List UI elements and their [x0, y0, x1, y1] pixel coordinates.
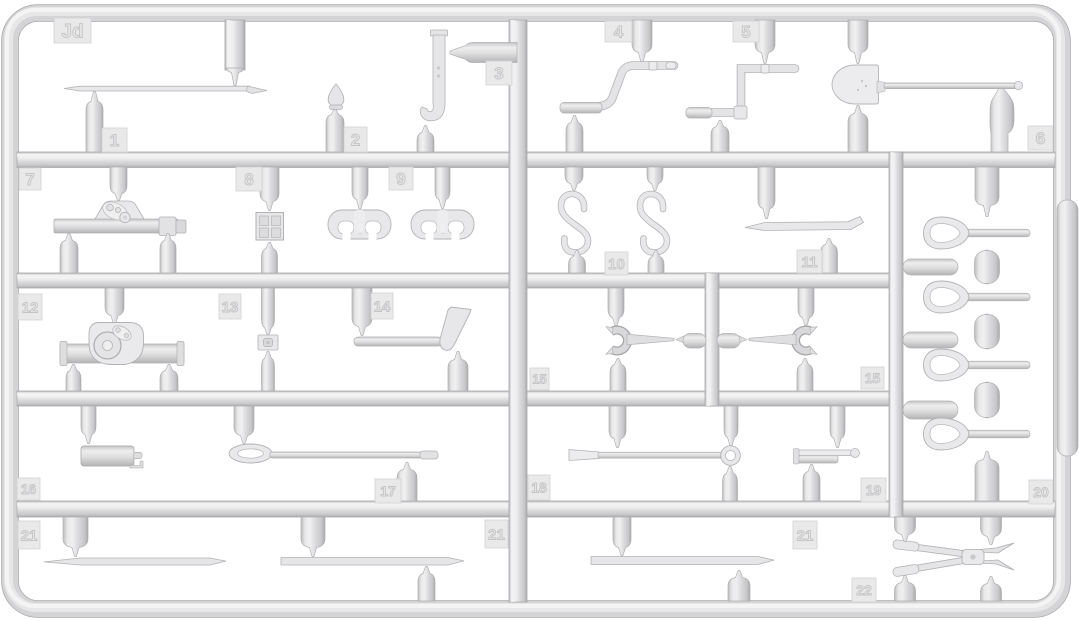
svg-text:1: 1: [110, 131, 119, 150]
svg-text:3: 3: [494, 64, 503, 83]
svg-text:9: 9: [396, 170, 405, 189]
svg-text:8: 8: [244, 170, 253, 189]
svg-text:21: 21: [21, 527, 38, 544]
svg-text:Jd: Jd: [61, 21, 83, 42]
svg-text:2: 2: [351, 131, 360, 150]
svg-text:11: 11: [802, 254, 818, 271]
svg-text:17: 17: [380, 483, 396, 499]
svg-text:7: 7: [25, 170, 34, 189]
svg-text:5: 5: [741, 23, 750, 42]
svg-text:6: 6: [1036, 129, 1045, 148]
svg-text:15: 15: [865, 370, 881, 386]
svg-text:13: 13: [222, 299, 239, 316]
svg-text:4: 4: [614, 23, 624, 42]
svg-text:10: 10: [608, 256, 625, 273]
svg-text:15: 15: [532, 372, 546, 387]
svg-text:22: 22: [856, 582, 872, 598]
svg-text:20: 20: [1033, 484, 1049, 500]
svg-text:19: 19: [866, 482, 882, 498]
svg-text:21: 21: [797, 527, 814, 544]
svg-text:14: 14: [374, 298, 391, 315]
svg-text:12: 12: [22, 299, 39, 316]
svg-text:16: 16: [21, 481, 37, 497]
svg-text:21: 21: [488, 526, 505, 543]
svg-text:18: 18: [531, 480, 547, 496]
